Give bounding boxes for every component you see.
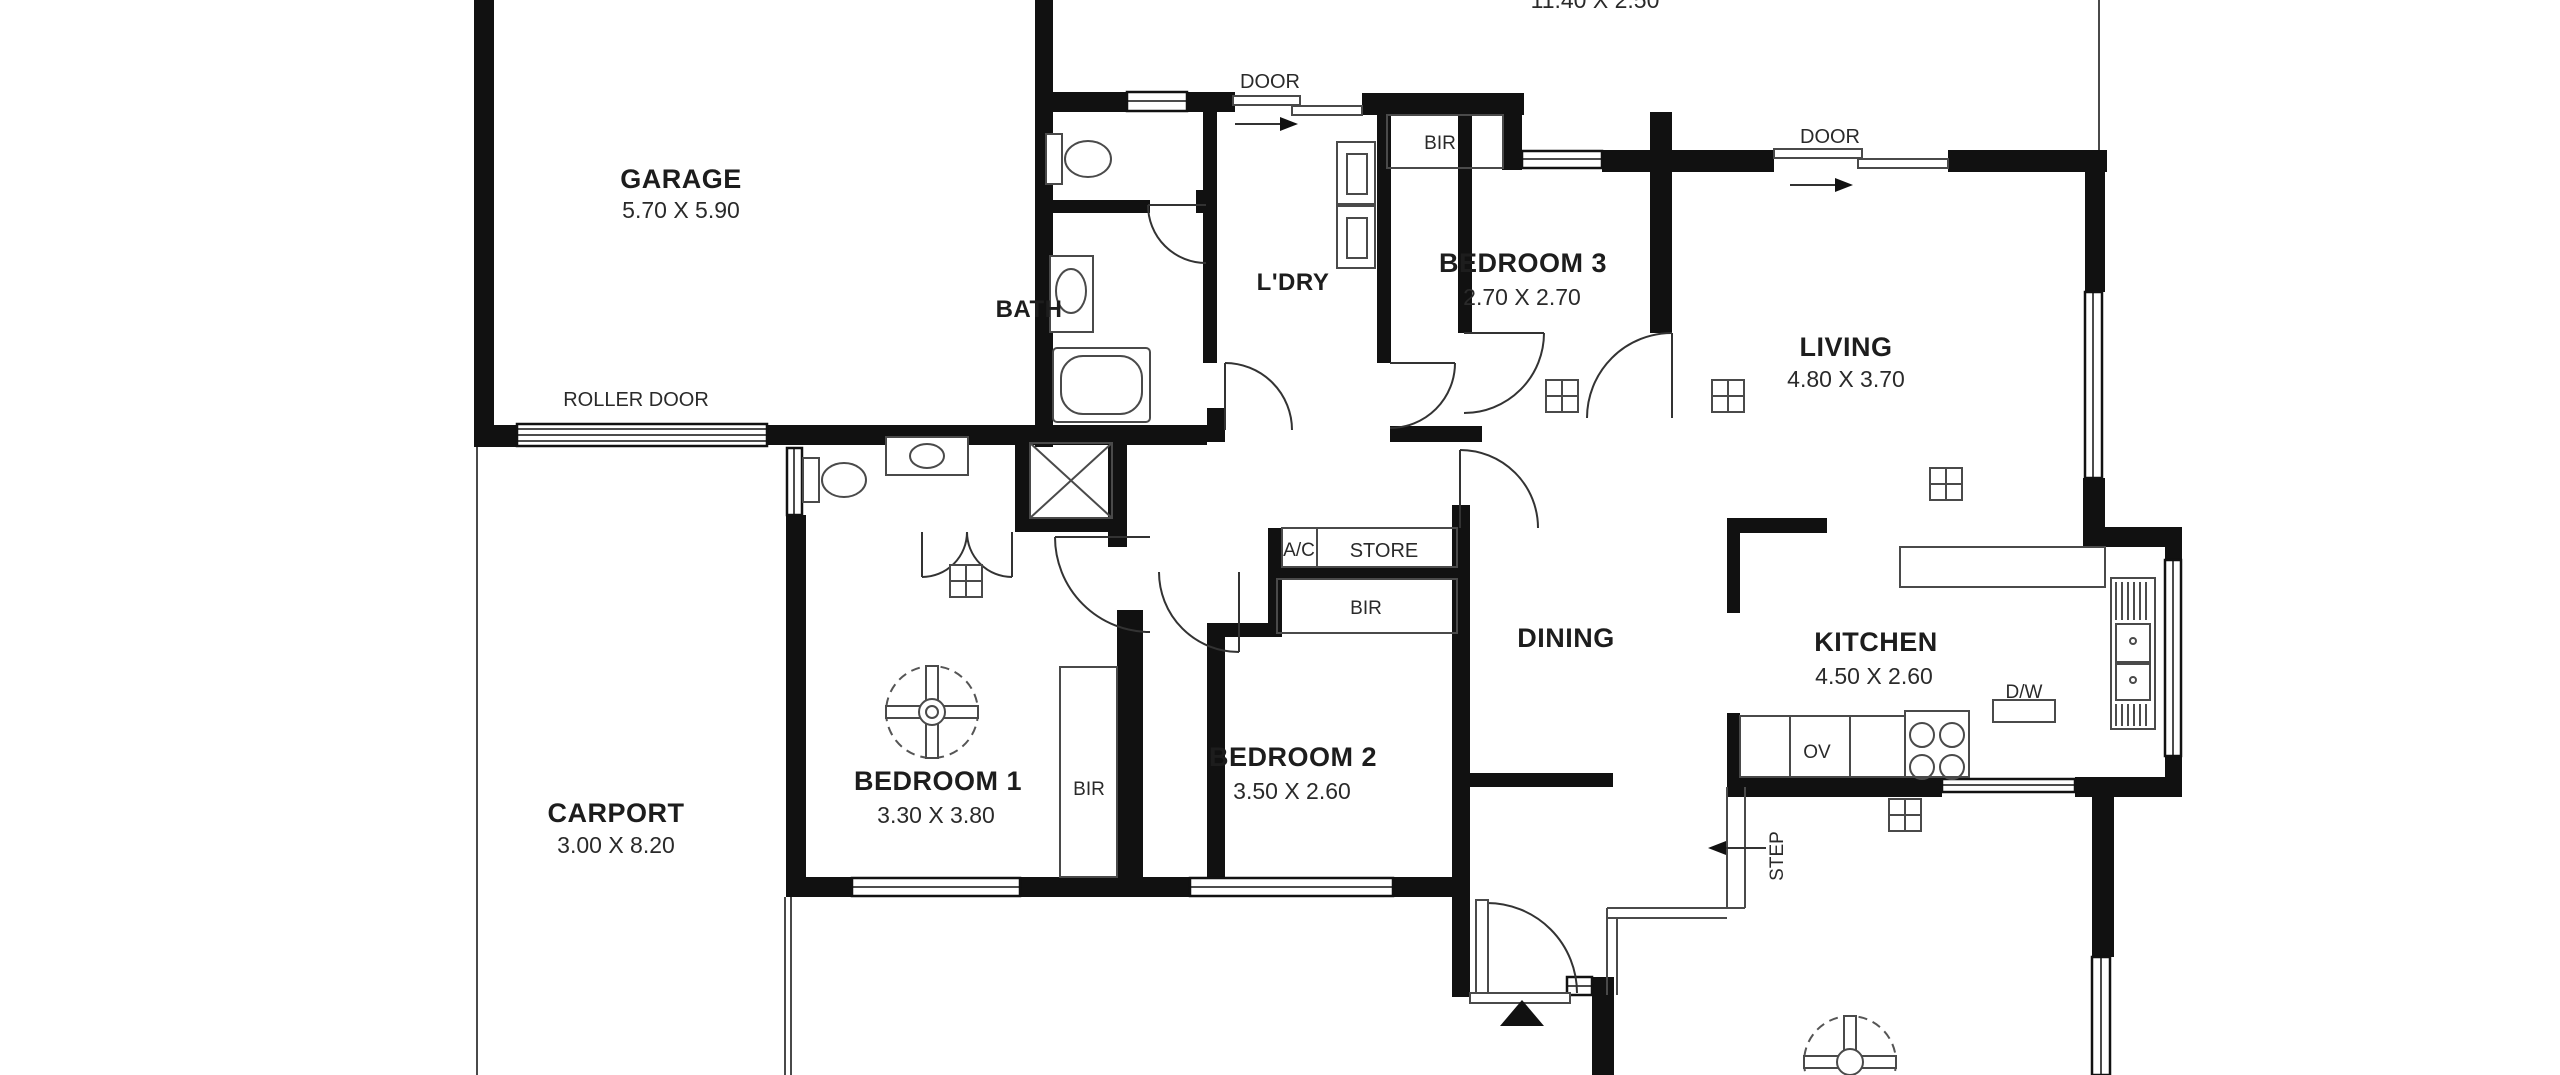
vanity2-icon xyxy=(886,437,968,475)
door-ldry xyxy=(1390,363,1455,428)
carport-dim: 3.00 X 8.20 xyxy=(557,832,675,858)
dishwasher-icon xyxy=(1993,700,2055,722)
bed3-dim: 2.70 X 2.70 xyxy=(1463,284,1581,310)
door-wc xyxy=(1148,205,1206,263)
bed2-name: BEDROOM 2 xyxy=(1209,742,1377,772)
bed2-dim: 3.50 X 2.60 xyxy=(1233,778,1351,804)
arrow-right-icon xyxy=(1835,178,1853,192)
bathtub-icon xyxy=(1053,348,1150,422)
window-kitchen-right xyxy=(2165,560,2181,756)
bir1-label: BIR xyxy=(1073,779,1105,800)
door-store xyxy=(1460,450,1538,528)
floorplan-canvas: 11.40 X 2.50 GARAGE 5.70 X 5.90 ROLLER D… xyxy=(0,0,2560,1075)
door-entry xyxy=(1470,900,1577,1026)
linen-press-icon xyxy=(1030,443,1112,518)
door-living-label: DOOR xyxy=(1800,126,1860,148)
ceiling-fan-icon xyxy=(1804,1016,1896,1075)
kitchen-name: KITCHEN xyxy=(1814,627,1938,657)
roller-door xyxy=(517,424,767,446)
floorplan-page: 11.40 X 2.50 GARAGE 5.70 X 5.90 ROLLER D… xyxy=(0,0,2560,1075)
bed1-name: BEDROOM 1 xyxy=(854,766,1022,796)
window-bed1 xyxy=(852,878,1020,896)
dining-name: DINING xyxy=(1517,623,1615,653)
laundry-trough-icon xyxy=(1337,142,1375,268)
door-bed2 xyxy=(1159,572,1239,652)
door-top-label: DOOR xyxy=(1240,71,1300,93)
bir2-label: BIR xyxy=(1350,598,1382,619)
window-living-right xyxy=(2085,292,2102,478)
kitchen-dim: 4.50 X 2.60 xyxy=(1815,663,1933,689)
bir3-label: BIR xyxy=(1424,133,1456,154)
toilet2-icon xyxy=(803,458,866,502)
window-bed2 xyxy=(1190,878,1393,896)
window-family-right xyxy=(2092,957,2110,1075)
sliding-door-living xyxy=(1774,149,1948,192)
vent-symbol-icon xyxy=(1546,380,1578,412)
window-bed3-top xyxy=(1522,151,1602,168)
carport-name: CARPORT xyxy=(548,798,685,828)
living-dim: 4.80 X 3.70 xyxy=(1787,366,1905,392)
arrow-right-icon xyxy=(1280,117,1298,131)
kitchen-sink-icon xyxy=(2111,578,2155,729)
sliding-door-top xyxy=(1233,96,1362,131)
toilet-icon xyxy=(1046,134,1111,184)
window-wc-top xyxy=(1127,92,1187,111)
vent-symbol-icon xyxy=(1930,468,1962,500)
door-bath xyxy=(1225,363,1292,430)
door-living xyxy=(1587,333,1672,418)
kitchen-peninsula-bench xyxy=(1900,547,2105,587)
living-name: LIVING xyxy=(1799,332,1892,362)
dw-label: D/W xyxy=(2006,682,2043,703)
ceiling-fan-icon xyxy=(886,666,978,758)
step-label: STEP xyxy=(1767,831,1788,881)
step-edge xyxy=(1607,787,1745,995)
window-kitchen-servery xyxy=(1942,779,2075,792)
cooktop-icon xyxy=(1905,711,1969,779)
bir1-closet xyxy=(1060,667,1117,877)
roller-door-label: ROLLER DOOR xyxy=(563,389,709,411)
carport-outline xyxy=(477,447,791,1075)
ldry-name: L'DRY xyxy=(1257,269,1330,296)
garage-dim: 5.70 X 5.90 xyxy=(622,197,740,223)
step-arrow-icon xyxy=(1708,841,1766,855)
window-wc2-left xyxy=(787,448,802,515)
ov-label: OV xyxy=(1803,742,1831,763)
garage-name: GARAGE xyxy=(620,164,742,194)
door-arcs xyxy=(922,205,1672,1026)
door-bed3 xyxy=(1464,333,1544,413)
store-label: STORE xyxy=(1350,540,1419,562)
bed3-name: BEDROOM 3 xyxy=(1439,248,1607,278)
bed1-dim: 3.30 X 3.80 xyxy=(877,802,995,828)
verandah-dim: 11.40 X 2.50 xyxy=(1531,0,1660,13)
vent-symbol-icon xyxy=(1889,799,1921,831)
bath-name: BATH xyxy=(996,296,1063,323)
vent-symbol-icon xyxy=(950,565,982,597)
vent-symbol-icon xyxy=(1712,380,1744,412)
ac-label: A/C xyxy=(1283,540,1315,561)
